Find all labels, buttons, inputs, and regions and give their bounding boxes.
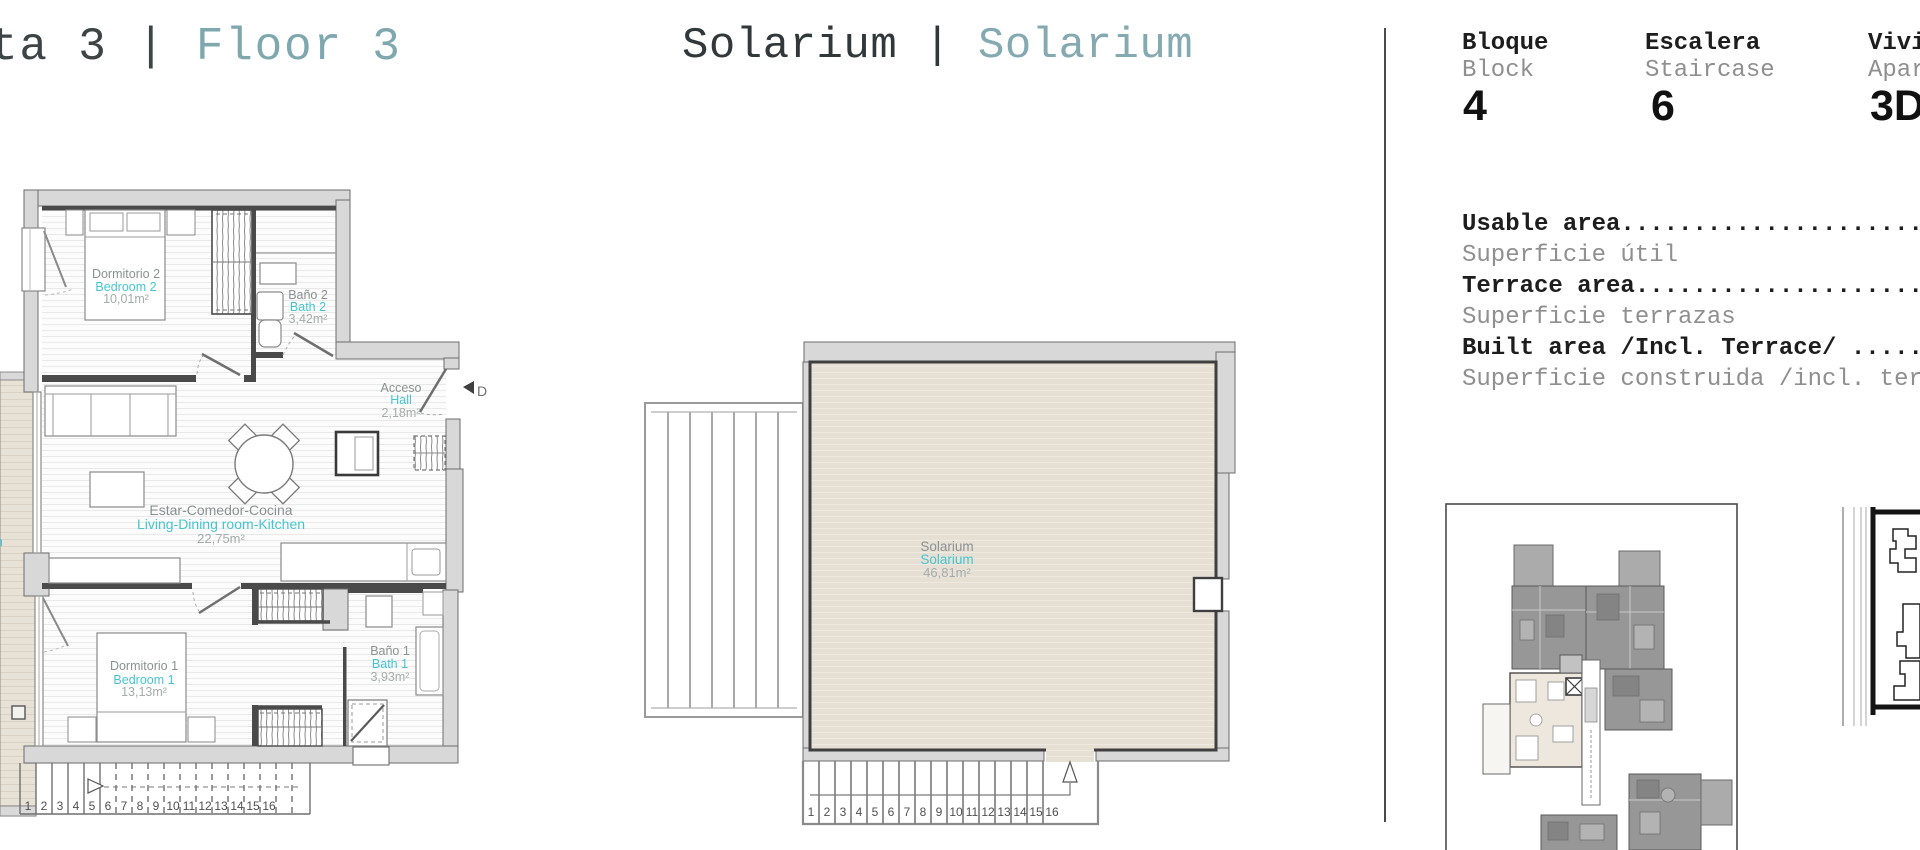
svg-text:22,75m²: 22,75m² — [197, 531, 245, 546]
svg-text:8: 8 — [920, 805, 927, 819]
svg-text:3,93m²: 3,93m² — [371, 670, 410, 684]
svg-text:13: 13 — [997, 805, 1011, 819]
svg-text:2: 2 — [41, 799, 48, 813]
svg-text:Dormitorio 2: Dormitorio 2 — [92, 267, 160, 281]
svg-text:11: 11 — [183, 799, 196, 813]
svg-text:m: m — [0, 534, 3, 549]
svg-text:16: 16 — [262, 799, 276, 813]
svg-text:5: 5 — [872, 805, 879, 819]
svg-text:15: 15 — [1029, 805, 1043, 819]
svg-text:1: 1 — [808, 805, 815, 819]
svg-text:1: 1 — [25, 799, 32, 813]
svg-text:14: 14 — [1013, 805, 1027, 819]
svg-text:16: 16 — [1045, 805, 1059, 819]
svg-text:Baño 1: Baño 1 — [370, 644, 410, 658]
svg-text:10: 10 — [949, 805, 963, 819]
svg-text:15: 15 — [246, 799, 260, 813]
svg-text:3: 3 — [840, 805, 847, 819]
svg-text:D: D — [477, 383, 487, 399]
svg-text:6: 6 — [888, 805, 895, 819]
svg-text:Dormitorio 1: Dormitorio 1 — [110, 659, 178, 673]
svg-text:10: 10 — [166, 799, 180, 813]
svg-text:Hall: Hall — [390, 393, 412, 407]
svg-text:13,13m²: 13,13m² — [121, 685, 167, 699]
svg-text:12: 12 — [981, 805, 995, 819]
svg-text:2: 2 — [824, 805, 831, 819]
svg-text:12: 12 — [198, 799, 212, 813]
svg-text:11: 11 — [966, 805, 979, 819]
svg-text:8: 8 — [137, 799, 144, 813]
svg-text:3: 3 — [57, 799, 64, 813]
svg-text:Living-Dining room-Kitchen: Living-Dining room-Kitchen — [137, 516, 305, 532]
svg-text:4: 4 — [73, 799, 80, 813]
svg-text:10,01m²: 10,01m² — [103, 292, 149, 306]
svg-text:Bath 1: Bath 1 — [372, 657, 408, 671]
svg-text:9: 9 — [936, 805, 943, 819]
svg-text:5: 5 — [89, 799, 96, 813]
svg-text:2,18m²: 2,18m² — [382, 406, 421, 420]
svg-text:3,42m²: 3,42m² — [289, 312, 328, 326]
svg-text:9: 9 — [153, 799, 160, 813]
svg-text:7: 7 — [121, 799, 128, 813]
svg-text:14: 14 — [230, 799, 244, 813]
svg-text:13: 13 — [214, 799, 228, 813]
svg-text:4: 4 — [856, 805, 863, 819]
svg-text:46,81m²: 46,81m² — [923, 565, 971, 580]
svg-text:6: 6 — [105, 799, 112, 813]
svg-text:7: 7 — [904, 805, 911, 819]
